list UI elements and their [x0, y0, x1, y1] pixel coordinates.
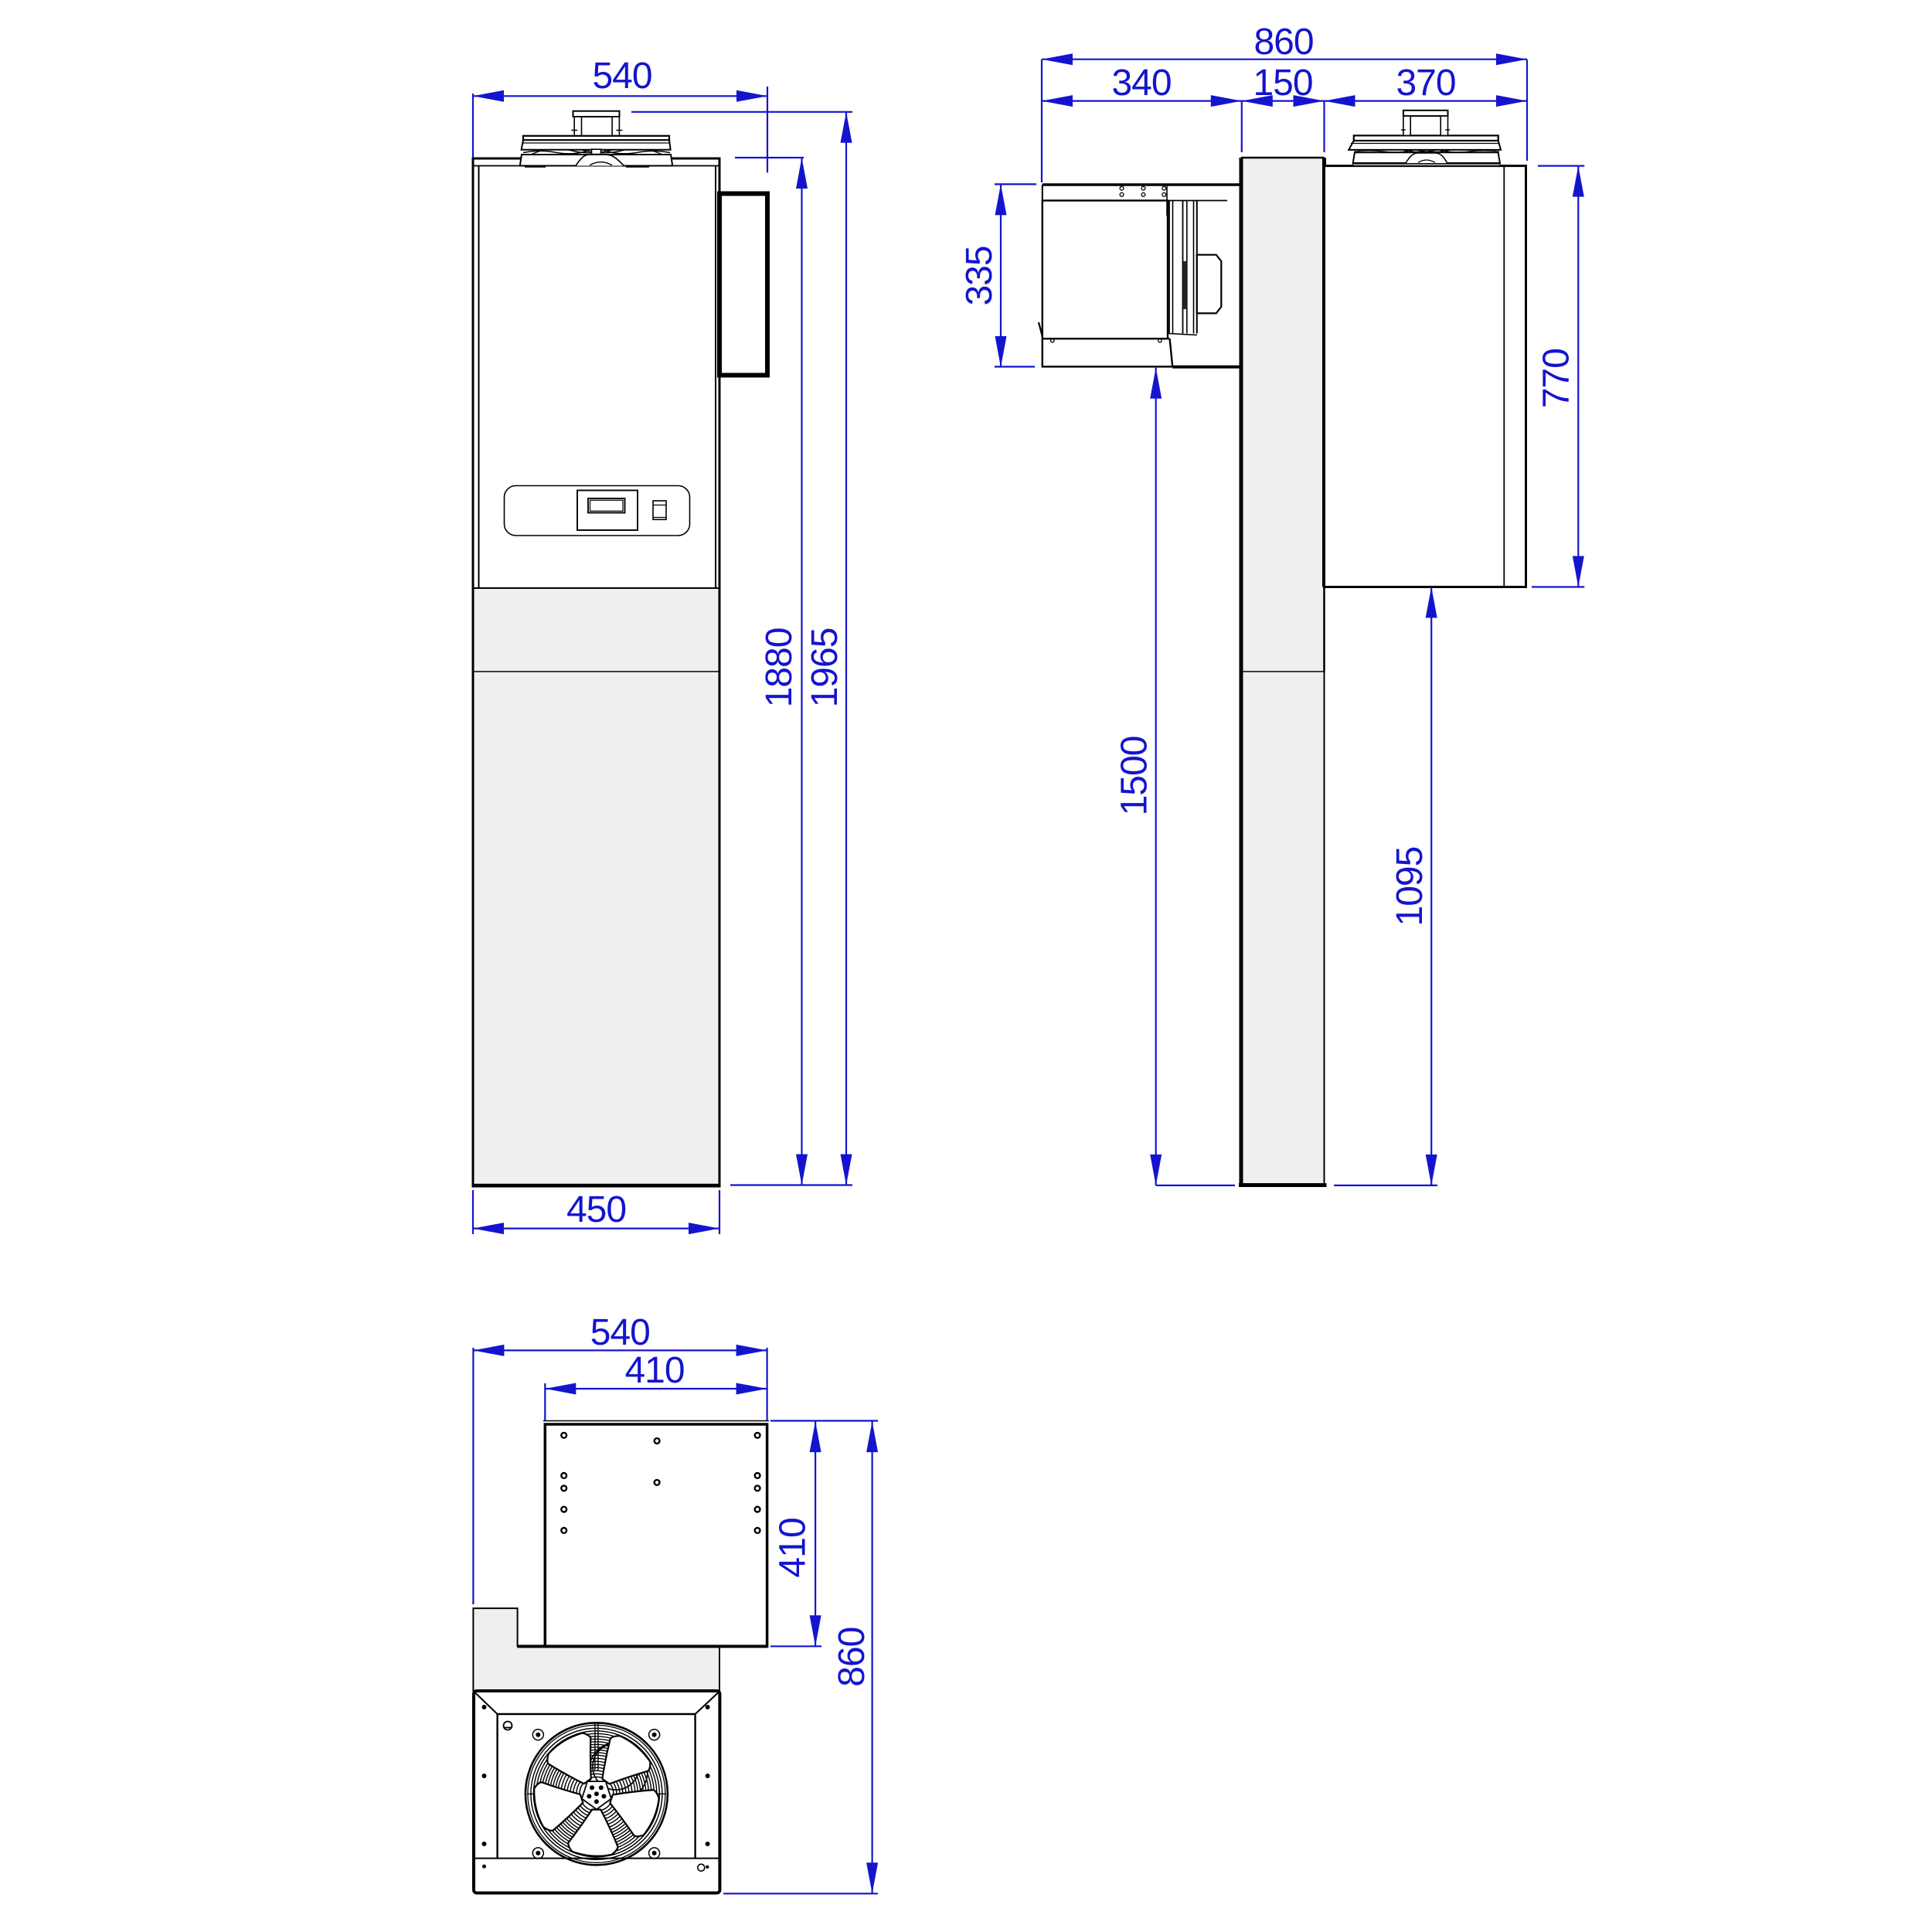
- svg-text:410: 410: [624, 1350, 684, 1391]
- svg-text:860: 860: [832, 1628, 872, 1687]
- svg-text:340: 340: [1111, 63, 1171, 104]
- svg-text:450: 450: [566, 1189, 626, 1230]
- svg-text:335: 335: [959, 246, 1000, 305]
- svg-text:1880: 1880: [759, 628, 800, 708]
- svg-text:1500: 1500: [1114, 736, 1155, 816]
- svg-text:540: 540: [592, 56, 651, 97]
- svg-text:1095: 1095: [1389, 847, 1430, 927]
- svg-text:770: 770: [1536, 349, 1577, 408]
- svg-text:370: 370: [1396, 63, 1455, 104]
- svg-text:540: 540: [590, 1312, 650, 1353]
- svg-text:410: 410: [773, 1518, 814, 1577]
- svg-text:1965: 1965: [804, 628, 845, 708]
- svg-text:860: 860: [1253, 22, 1313, 63]
- svg-text:150: 150: [1253, 63, 1312, 104]
